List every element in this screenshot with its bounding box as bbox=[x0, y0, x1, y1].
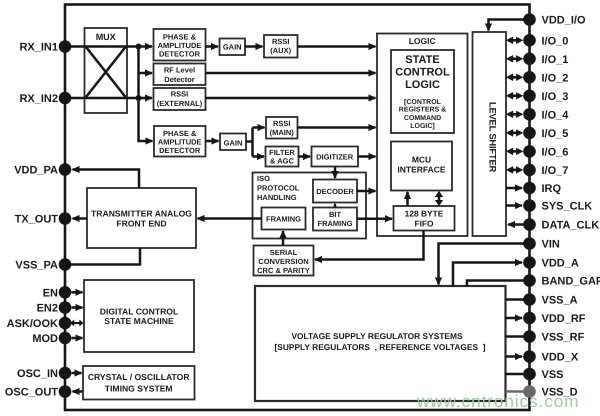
svg-text:VOLTAGE SUPPLY REGULATOR SYSTE: VOLTAGE SUPPLY REGULATOR SYSTEMS bbox=[291, 331, 463, 341]
svg-text:VDD_X: VDD_X bbox=[542, 352, 579, 364]
svg-text:FRONT END: FRONT END bbox=[116, 219, 166, 229]
svg-text:STATE MACHINE: STATE MACHINE bbox=[104, 316, 174, 326]
svg-text:FIFO: FIFO bbox=[414, 219, 434, 229]
svg-text:SERIAL: SERIAL bbox=[270, 248, 298, 257]
svg-text:DIGITIZER: DIGITIZER bbox=[316, 153, 354, 162]
svg-text:VSS: VSS bbox=[542, 369, 564, 381]
svg-text:I/O_3: I/O_3 bbox=[542, 91, 569, 103]
svg-text:INTERFACE: INTERFACE bbox=[397, 165, 446, 175]
svg-text:(MAIN): (MAIN) bbox=[270, 128, 295, 137]
svg-text:RSSI: RSSI bbox=[171, 90, 189, 99]
svg-text:LOGIC: LOGIC bbox=[409, 36, 436, 46]
svg-text:www.cntronics.com: www.cntronics.com bbox=[416, 391, 579, 411]
svg-text:DETECTOR: DETECTOR bbox=[159, 146, 201, 155]
svg-text:[SUPPLY REGULATORS , REFERENC: [SUPPLY REGULATORS , REFERENCE VOLTAGES … bbox=[274, 342, 485, 352]
svg-text:VDD_A: VDD_A bbox=[542, 258, 579, 270]
svg-text:RSSI: RSSI bbox=[273, 119, 291, 128]
svg-text:EN2: EN2 bbox=[37, 303, 58, 315]
svg-text:RX_IN2: RX_IN2 bbox=[19, 93, 58, 105]
svg-text:CRC & PARITY: CRC & PARITY bbox=[257, 266, 310, 275]
svg-text:IRQ: IRQ bbox=[542, 183, 562, 195]
svg-text:OSC_OUT: OSC_OUT bbox=[5, 387, 58, 399]
svg-text:LEVEL SHIFTER: LEVEL SHIFTER bbox=[487, 102, 498, 173]
svg-text:MUX: MUX bbox=[96, 32, 116, 42]
svg-text:VDD_I/O: VDD_I/O bbox=[542, 15, 586, 27]
svg-text:RF Level: RF Level bbox=[164, 66, 195, 75]
svg-text:CRYSTAL / OSCILLATOR: CRYSTAL / OSCILLATOR bbox=[88, 372, 190, 382]
svg-text:VSS_RF: VSS_RF bbox=[542, 332, 585, 344]
svg-text:COMMAND: COMMAND bbox=[404, 115, 441, 122]
svg-text:BAND_GAP: BAND_GAP bbox=[542, 276, 600, 288]
svg-text:VSS_PA: VSS_PA bbox=[15, 260, 58, 272]
svg-text:(AUX): (AUX) bbox=[270, 46, 291, 55]
svg-text:TRANSMITTER ANALOG: TRANSMITTER ANALOG bbox=[91, 209, 192, 219]
svg-text:HANDLING: HANDLING bbox=[257, 193, 297, 202]
svg-text:I/O_4: I/O_4 bbox=[542, 109, 570, 121]
svg-text:(EXTERNAL): (EXTERNAL) bbox=[157, 99, 203, 108]
svg-text:MOD: MOD bbox=[32, 333, 58, 345]
svg-text:128 BYTE: 128 BYTE bbox=[405, 209, 444, 219]
svg-text:I/O_6: I/O_6 bbox=[542, 146, 569, 158]
svg-text:SYS_CLK: SYS_CLK bbox=[542, 201, 593, 213]
svg-text:I/O_7: I/O_7 bbox=[542, 165, 569, 177]
svg-text:DETECTOR: DETECTOR bbox=[159, 50, 201, 59]
svg-text:LOGIC]: LOGIC] bbox=[410, 122, 435, 130]
svg-text:ISO: ISO bbox=[257, 174, 270, 183]
svg-text:I/O_0: I/O_0 bbox=[542, 35, 569, 47]
svg-text:RSSI: RSSI bbox=[272, 37, 290, 46]
svg-text:VIN: VIN bbox=[542, 239, 560, 251]
svg-text:CONTROL: CONTROL bbox=[395, 67, 450, 79]
svg-text:& AGC: & AGC bbox=[270, 157, 294, 166]
svg-text:Detector: Detector bbox=[164, 75, 195, 84]
svg-text:VSS_A: VSS_A bbox=[542, 295, 578, 307]
svg-text:TIMING SYSTEM: TIMING SYSTEM bbox=[105, 384, 173, 394]
svg-text:PROTOCOL: PROTOCOL bbox=[257, 184, 300, 193]
svg-text:DECODER: DECODER bbox=[316, 187, 354, 196]
svg-text:LOGIC: LOGIC bbox=[405, 79, 440, 91]
svg-text:FRAMING: FRAMING bbox=[266, 215, 301, 224]
svg-text:DATA_CLK: DATA_CLK bbox=[542, 220, 600, 232]
svg-text:GAIN: GAIN bbox=[224, 139, 243, 148]
svg-text:VDD_PA: VDD_PA bbox=[14, 165, 58, 177]
svg-text:STATE: STATE bbox=[405, 54, 439, 66]
svg-text:VDD_RF: VDD_RF bbox=[542, 313, 586, 325]
svg-text:TX_OUT: TX_OUT bbox=[15, 214, 59, 226]
svg-text:I/O_1: I/O_1 bbox=[542, 54, 569, 66]
svg-text:GAIN: GAIN bbox=[223, 43, 242, 52]
svg-text:BIT: BIT bbox=[329, 210, 342, 219]
svg-text:REGISTERS &: REGISTERS & bbox=[399, 107, 446, 114]
svg-text:[CONTROL: [CONTROL bbox=[404, 98, 442, 106]
svg-text:OSC_IN: OSC_IN bbox=[17, 368, 58, 380]
svg-text:I/O_5: I/O_5 bbox=[542, 128, 569, 140]
svg-text:DIGITAL CONTROL: DIGITAL CONTROL bbox=[100, 307, 178, 317]
svg-text:EN: EN bbox=[43, 287, 58, 299]
svg-text:I/O_2: I/O_2 bbox=[542, 72, 569, 84]
svg-text:RX_IN1: RX_IN1 bbox=[19, 42, 58, 54]
svg-text:FRAMING: FRAMING bbox=[318, 219, 353, 228]
svg-text:ASK/OOK: ASK/OOK bbox=[7, 318, 58, 330]
svg-text:MCU: MCU bbox=[412, 155, 431, 165]
svg-text:CONVERSION: CONVERSION bbox=[258, 257, 308, 266]
